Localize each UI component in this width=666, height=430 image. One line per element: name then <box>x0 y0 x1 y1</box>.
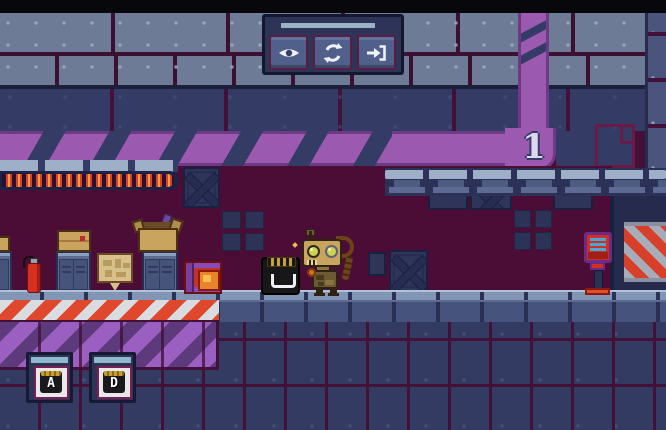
locker-top <box>144 253 176 256</box>
locker-door <box>159 259 174 290</box>
rail-feet <box>385 187 666 193</box>
glint <box>310 248 313 251</box>
crate-spine <box>186 263 194 292</box>
hud-panel <box>262 14 404 75</box>
locker-edge <box>0 251 12 294</box>
x-crate-upper-left <box>183 167 220 208</box>
note-scribble <box>123 263 130 268</box>
fire-extinguisher <box>23 256 43 294</box>
key-tile-top <box>94 357 131 363</box>
note-scribble <box>116 272 126 277</box>
hazard-wall <box>610 196 666 300</box>
window-pane <box>245 211 264 229</box>
vent <box>76 266 85 268</box>
window-pane <box>245 233 264 251</box>
vent <box>162 266 171 268</box>
rail-supports <box>385 180 666 187</box>
cardboard-box-edge <box>0 236 10 252</box>
robot-shoulder-joint <box>307 268 316 277</box>
window-panel-right <box>514 210 552 250</box>
sign-band <box>588 252 608 259</box>
sign-line <box>590 243 606 246</box>
cardboard-box-open <box>133 214 181 252</box>
note-scribble <box>115 259 121 268</box>
sign-post-neck <box>590 262 605 270</box>
key-tile-panel: D <box>97 366 132 399</box>
camo-patch <box>325 280 334 285</box>
sign-line <box>590 248 606 251</box>
keycap-d: D <box>103 371 125 393</box>
robot-foot-left <box>314 293 325 296</box>
visibility-button[interactable] <box>269 35 308 70</box>
eye-icon <box>277 41 301 65</box>
window-panel-left <box>222 211 264 251</box>
sign-post-base <box>585 288 610 295</box>
locker-1 <box>56 251 91 294</box>
glint <box>328 248 331 251</box>
note-sign-pointer <box>110 283 120 291</box>
key-hint-a: A <box>26 352 73 403</box>
open-box-body <box>138 228 178 252</box>
vent <box>148 271 157 273</box>
robot-foot-right <box>328 293 339 296</box>
camo-patch <box>318 282 324 286</box>
window-pane <box>535 232 552 250</box>
glow-chain-conveyor <box>0 171 179 190</box>
camo-patch <box>316 275 324 280</box>
vent <box>62 266 71 268</box>
note-sign <box>97 253 133 283</box>
vent <box>76 271 85 273</box>
locker-top <box>58 253 89 256</box>
power-crate <box>184 261 222 294</box>
locker-2 <box>142 251 178 294</box>
window-pane <box>222 211 241 229</box>
pipe-slash-1 <box>518 14 549 44</box>
locker-top <box>0 253 10 256</box>
x-crate-center <box>389 250 428 292</box>
navy-panel-wall <box>0 89 666 131</box>
key-tile-panel: A <box>34 366 69 399</box>
right-edge-pillar <box>645 13 666 170</box>
vent <box>148 266 157 268</box>
level-number: 1 <box>515 126 553 168</box>
cardboard-box-closed <box>57 230 91 252</box>
vertical-purple-pipe <box>518 13 549 138</box>
locker-door <box>0 259 9 290</box>
hud-panel-top-strip <box>281 23 375 28</box>
small-panel <box>368 252 386 276</box>
locker-door <box>73 259 88 290</box>
extinguisher-body <box>27 263 41 293</box>
exit-button[interactable] <box>357 35 396 70</box>
keycap-a: A <box>40 371 62 393</box>
battery-terminals <box>267 257 296 267</box>
small-panel-outline-2 <box>620 124 635 144</box>
robot-tail-segment <box>342 256 354 281</box>
sign-line <box>590 238 606 241</box>
sign-post-head <box>584 232 612 263</box>
vent <box>162 271 171 273</box>
ceiling-rail-right <box>385 168 666 196</box>
key-hint-d: D <box>89 352 136 403</box>
vent <box>62 271 71 273</box>
hazard-stripes <box>624 222 666 282</box>
exit-icon <box>365 41 389 65</box>
robot-player <box>300 230 358 296</box>
key-tile-top <box>31 357 68 363</box>
restart-icon <box>321 41 345 65</box>
chain-links <box>2 174 174 187</box>
panel-rivets <box>0 89 666 131</box>
note-scribble <box>103 260 112 266</box>
note-scribble <box>105 270 112 277</box>
robot-eye-left <box>307 245 320 258</box>
glow-core-inner <box>203 275 211 282</box>
battery-slot <box>271 274 296 288</box>
restart-button[interactable] <box>313 35 352 70</box>
top-black-bar <box>0 0 666 13</box>
window-pane <box>514 210 531 228</box>
battery-pickup <box>261 257 300 295</box>
rail-bars <box>385 170 666 179</box>
game-viewport: 1 <box>0 0 666 430</box>
platform-hazard-band <box>0 300 219 322</box>
window-pane <box>514 232 531 250</box>
window-pane <box>222 233 241 251</box>
crate-edge <box>194 263 220 268</box>
box-tape <box>80 236 85 241</box>
robot-mouth-grille <box>307 260 317 265</box>
window-pane <box>535 210 552 228</box>
robot-eye-right <box>325 245 338 258</box>
